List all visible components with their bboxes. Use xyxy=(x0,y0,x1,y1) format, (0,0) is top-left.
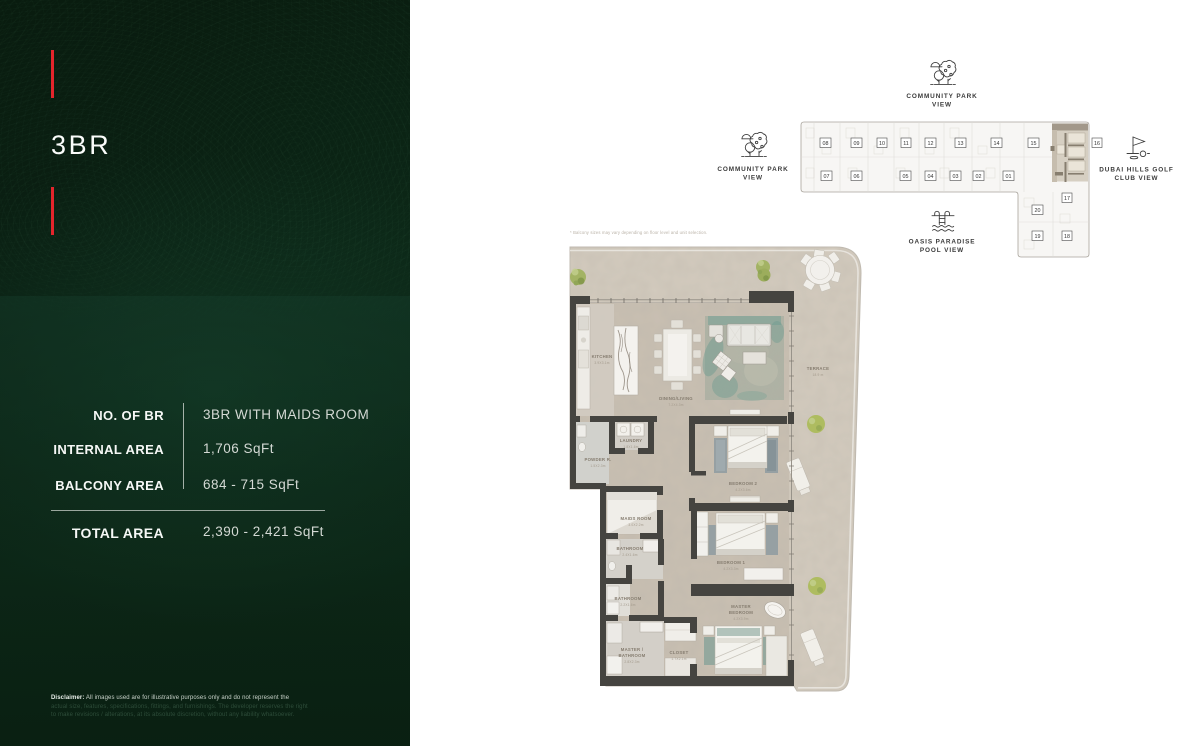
svg-text:BATHROOM: BATHROOM xyxy=(617,546,644,551)
svg-text:TERRACE: TERRACE xyxy=(807,366,830,371)
svg-text:2.8X2.3m: 2.8X2.3m xyxy=(624,660,639,664)
svg-text:18: 18 xyxy=(1064,234,1070,240)
svg-text:BATHROOM: BATHROOM xyxy=(615,596,642,601)
svg-text:01: 01 xyxy=(1006,174,1012,180)
svg-text:16: 16 xyxy=(1094,141,1100,147)
svg-text:OASIS PARADISE: OASIS PARADISE xyxy=(909,239,976,246)
svg-text:CLUB VIEW: CLUB VIEW xyxy=(1115,175,1159,182)
svg-text:18.9 m: 18.9 m xyxy=(813,373,824,377)
svg-text:12: 12 xyxy=(928,141,934,147)
svg-text:CLOSET: CLOSET xyxy=(670,650,689,655)
svg-text:BEDROOM 1: BEDROOM 1 xyxy=(717,560,746,565)
svg-text:COMMUNITY PARK: COMMUNITY PARK xyxy=(906,93,977,100)
svg-text:2.2X1.6m: 2.2X1.6m xyxy=(620,603,635,607)
svg-text:4.2X3.3m: 4.2X3.3m xyxy=(723,567,738,571)
svg-text:LAUNDRY: LAUNDRY xyxy=(620,438,643,443)
svg-text:POOL VIEW: POOL VIEW xyxy=(920,247,964,254)
svg-text:DUBAI HILLS GOLF: DUBAI HILLS GOLF xyxy=(1099,167,1173,174)
svg-text:1.7X2.1m: 1.7X2.1m xyxy=(671,657,686,661)
svg-text:1.5X2.3m: 1.5X2.3m xyxy=(590,464,605,468)
svg-text:POWDER R.: POWDER R. xyxy=(584,457,611,462)
svg-text:DINING/LIVING: DINING/LIVING xyxy=(659,396,693,401)
svg-text:VIEW: VIEW xyxy=(932,102,952,109)
svg-text:7.2X4.3m: 7.2X4.3m xyxy=(668,403,683,407)
svg-text:17: 17 xyxy=(1064,196,1070,202)
svg-text:4.2X3.6m: 4.2X3.6m xyxy=(735,488,750,492)
svg-text:MASTER: MASTER xyxy=(731,604,751,609)
svg-text:13: 13 xyxy=(958,141,964,147)
svg-text:COMMUNITY PARK: COMMUNITY PARK xyxy=(717,166,788,173)
svg-text:03: 03 xyxy=(953,174,959,180)
svg-text:09: 09 xyxy=(854,141,860,147)
svg-text:3.0X2.2m: 3.0X2.2m xyxy=(628,523,643,527)
svg-text:BEDROOM 2: BEDROOM 2 xyxy=(729,481,758,486)
svg-text:07: 07 xyxy=(824,174,830,180)
svg-text:10: 10 xyxy=(879,141,885,147)
svg-text:3.9X3.1m: 3.9X3.1m xyxy=(594,361,609,365)
svg-text:VIEW: VIEW xyxy=(743,175,763,182)
svg-text:05: 05 xyxy=(903,174,909,180)
svg-text:1.8X1.6m: 1.8X1.6m xyxy=(623,445,638,449)
svg-text:KITCHEN: KITCHEN xyxy=(592,354,613,359)
svg-text:19: 19 xyxy=(1035,234,1041,240)
svg-text:11: 11 xyxy=(903,141,909,147)
svg-text:06: 06 xyxy=(854,174,860,180)
svg-text:2.4X1.6m: 2.4X1.6m xyxy=(622,553,637,557)
svg-text:20: 20 xyxy=(1035,208,1041,214)
svg-text:15: 15 xyxy=(1031,141,1037,147)
svg-text:04: 04 xyxy=(928,174,934,180)
svg-text:02: 02 xyxy=(976,174,982,180)
svg-text:BEDROOM: BEDROOM xyxy=(729,610,753,615)
svg-text:BATHROOM: BATHROOM xyxy=(619,653,646,658)
svg-text:14: 14 xyxy=(994,141,1000,147)
svg-text:* Balcony sizes may vary depen: * Balcony sizes may vary depending on fl… xyxy=(570,230,707,235)
svg-text:08: 08 xyxy=(823,141,829,147)
svg-text:MASTER /: MASTER / xyxy=(621,647,644,652)
svg-text:4.2X3.9m: 4.2X3.9m xyxy=(733,617,748,621)
svg-text:MAIDS ROOM: MAIDS ROOM xyxy=(621,516,652,521)
